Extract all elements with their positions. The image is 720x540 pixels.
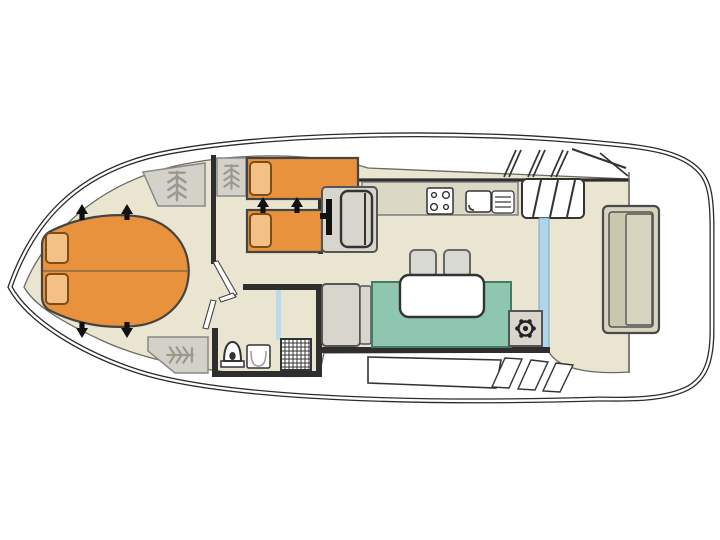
bathroom-wall-bottom — [213, 371, 322, 377]
plan-canvas — [0, 0, 720, 540]
shower-grid-icon — [281, 339, 311, 370]
aft-deck-bench — [603, 206, 659, 333]
galley — [362, 182, 518, 215]
helm-seat — [320, 187, 377, 252]
fridge-unit — [322, 284, 360, 346]
steering-column — [320, 213, 327, 219]
saloon-table — [400, 275, 484, 317]
bathroom-wall-top — [243, 284, 322, 290]
window-strip — [368, 357, 501, 388]
bathroom-wall-left — [212, 328, 218, 377]
steering-pod — [509, 311, 542, 346]
stool — [410, 250, 436, 277]
sink-icon — [466, 191, 514, 213]
boat-deck-plan — [0, 0, 720, 540]
pillow — [46, 274, 68, 304]
bow-bulkhead — [211, 155, 216, 264]
stool — [444, 250, 470, 277]
stairs-icon — [522, 179, 584, 218]
pillow — [250, 162, 271, 195]
pillow — [250, 214, 271, 247]
cabinet-unit — [360, 286, 371, 344]
shower-screen — [276, 290, 281, 340]
pillow — [46, 233, 68, 263]
stove-icon — [427, 188, 453, 214]
bench-backrest — [626, 214, 652, 325]
washbasin-icon — [247, 345, 270, 368]
